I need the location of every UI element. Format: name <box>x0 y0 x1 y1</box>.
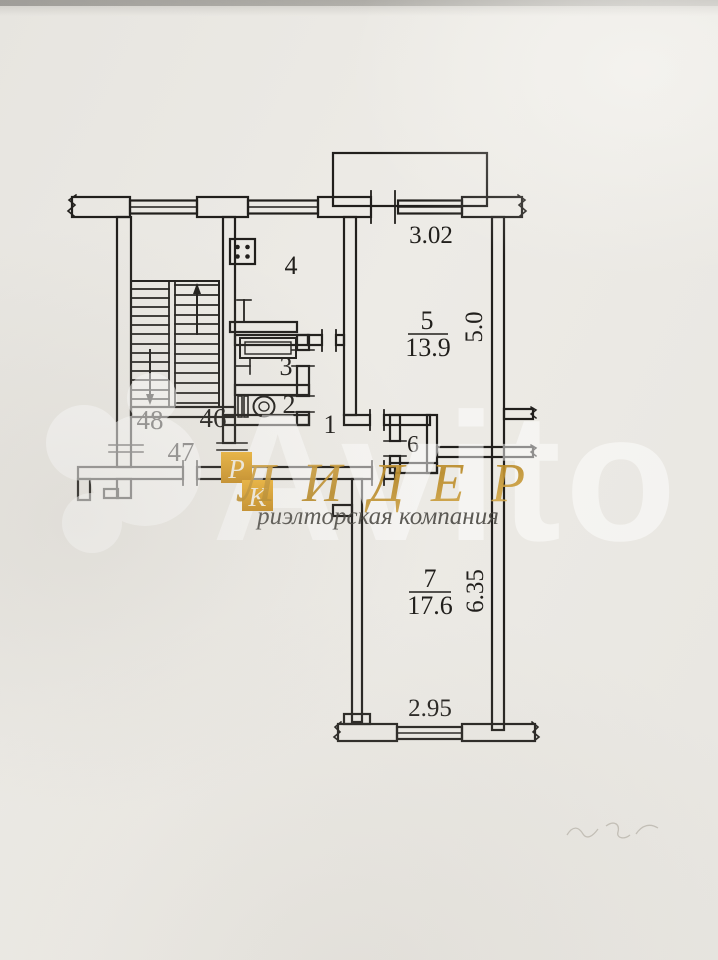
floor-plan-photo: 1 2 3 4 6 5 13.9 7 17.6 3.02 5.0 6.35 2.… <box>0 0 718 960</box>
avito-logo-dots <box>46 373 201 553</box>
room-label-living-room: 5 <box>421 306 434 335</box>
area-label-bedroom: 17.6 <box>407 591 453 620</box>
area-label-living-room: 13.9 <box>405 333 451 362</box>
agency-tagline-watermark: риэлторская компания <box>255 503 499 530</box>
pencil-marks <box>567 823 658 838</box>
dim-living-room-depth: 5.0 <box>461 311 488 342</box>
stove-icon <box>230 239 255 264</box>
dim-living-room-width: 3.02 <box>409 222 453 249</box>
floor-plan-svg: 1 2 3 4 6 5 13.9 7 17.6 3.02 5.0 6.35 2.… <box>0 0 718 960</box>
kitchen-walls <box>230 300 297 332</box>
stair-up-arrow <box>193 283 201 334</box>
room-label-kitchen: 4 <box>285 251 298 280</box>
top-exterior-wall <box>68 191 526 223</box>
dim-bedroom-width: 2.95 <box>408 695 452 722</box>
